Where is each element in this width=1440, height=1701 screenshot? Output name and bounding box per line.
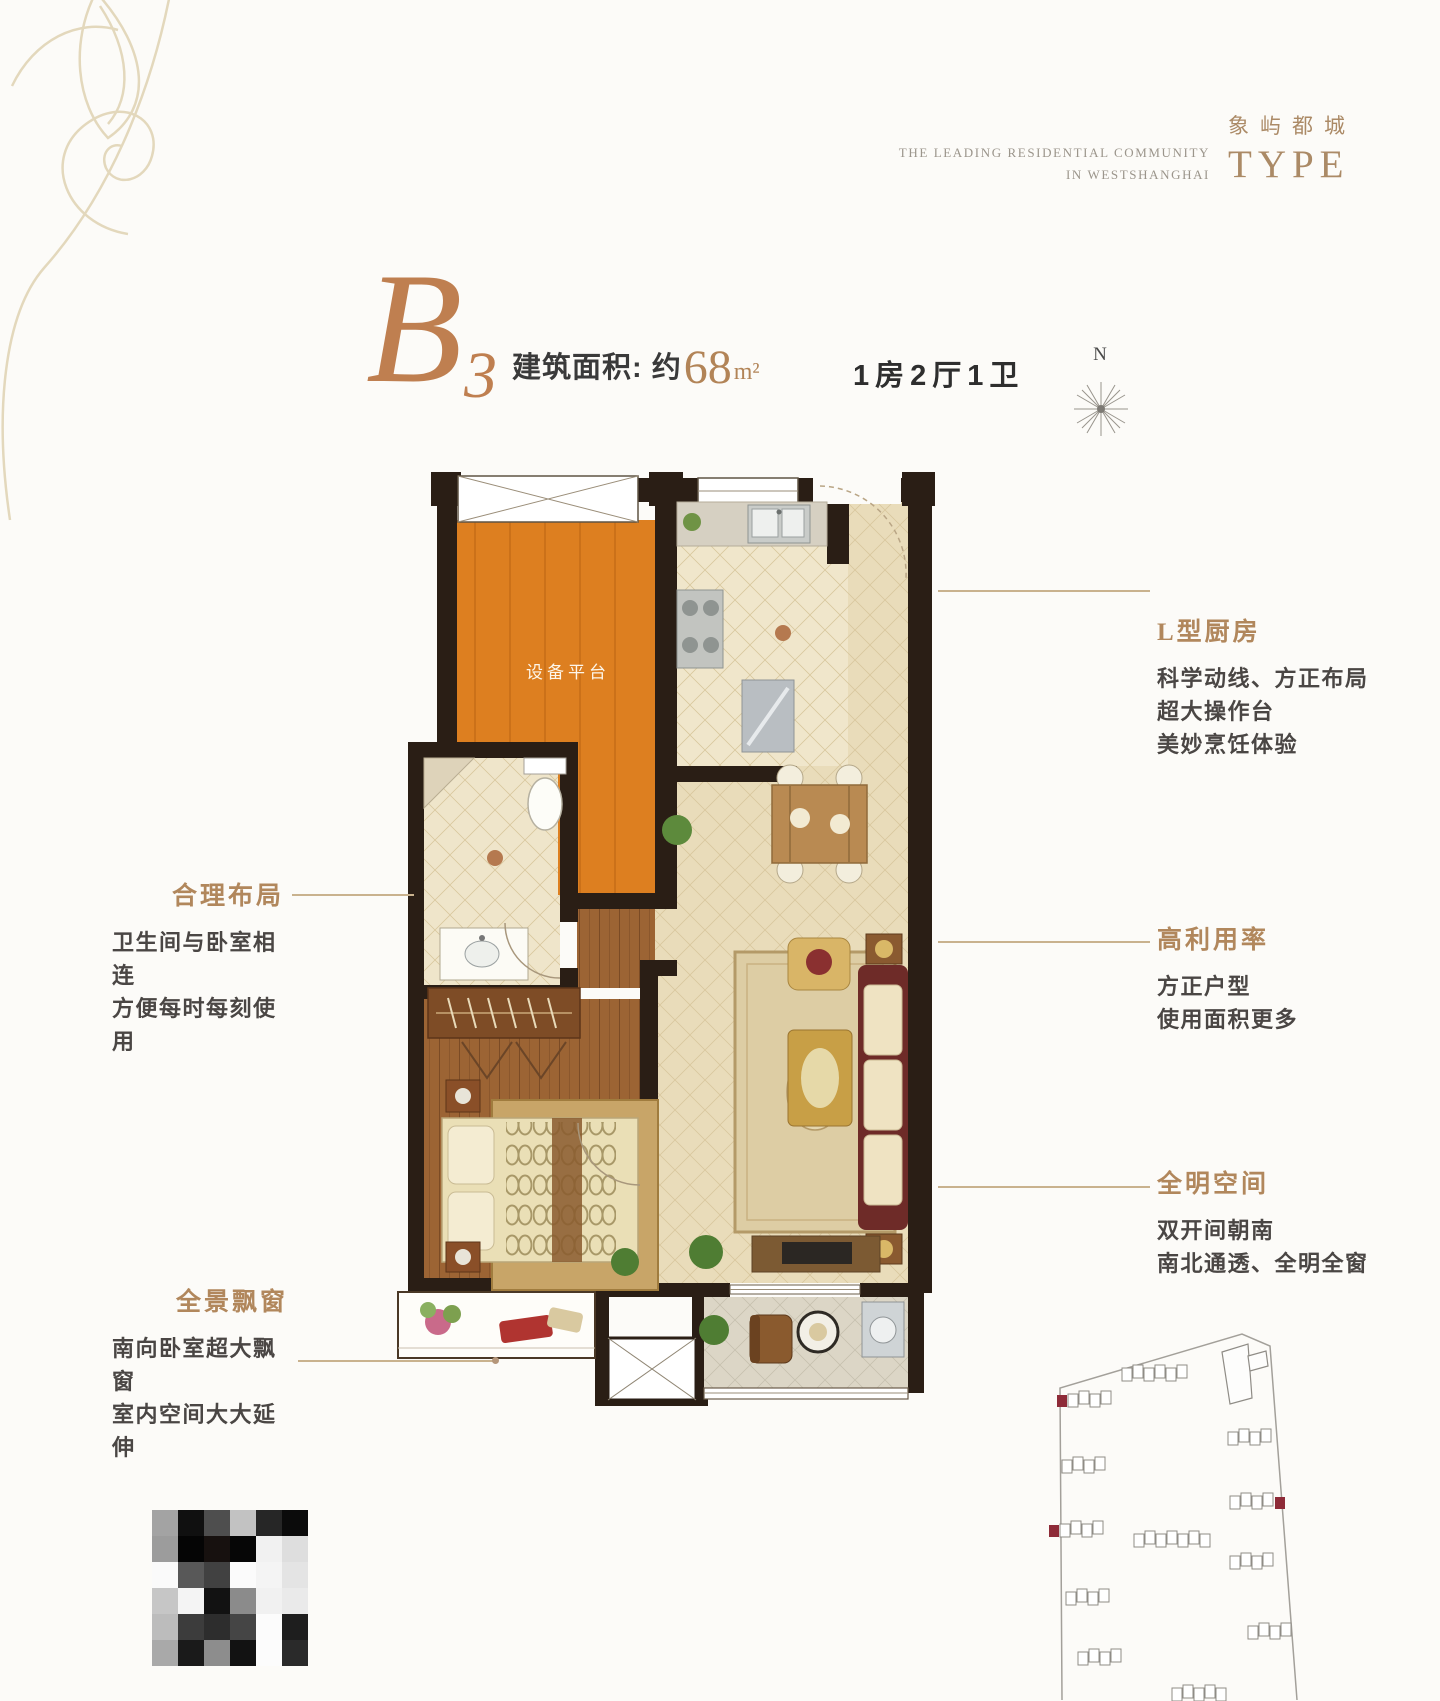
annotation-line: 卫生间与卧室相连: [112, 926, 284, 992]
qr-pixel: [256, 1640, 282, 1666]
qr-pixel: [178, 1536, 204, 1562]
qr-pixel-block: [152, 1510, 308, 1666]
site-highlight-unit: [1057, 1395, 1067, 1407]
annotation-line: 美妙烹饪体验: [1157, 728, 1397, 761]
site-highlight-unit: [1049, 1525, 1059, 1537]
annotation-line: 方正户型: [1157, 970, 1397, 1003]
site-hook-building: [1222, 1344, 1268, 1404]
bath-floor-rosette: [487, 850, 503, 866]
balcony-slider-window: [730, 1285, 860, 1294]
site-building-cluster: [1248, 1623, 1291, 1639]
equipment-platform-window: [458, 476, 638, 522]
logo-type: TYPE: [1228, 142, 1418, 187]
bay-window: [398, 1292, 595, 1358]
dining-plant: [662, 815, 692, 845]
ornament-stem: [3, 0, 170, 520]
site-building-cluster: [1230, 1553, 1273, 1569]
annotation-line: 方便每时每刻使用: [112, 992, 284, 1058]
qr-pixel: [204, 1562, 230, 1588]
toilet-tank: [524, 758, 566, 774]
area-info: 建筑面积: 约 68 m²: [512, 344, 760, 390]
unit-letter: B: [366, 250, 463, 408]
connector-utilization: [938, 941, 1150, 943]
living-plant: [689, 1235, 723, 1269]
annotation-line: 南北通透、全明全窗: [1157, 1247, 1397, 1280]
balcony-table: [798, 1312, 838, 1352]
qr-pixel: [152, 1640, 178, 1666]
kitchen-floor-rosette: [775, 625, 791, 641]
qr-pixel: [204, 1640, 230, 1666]
annotation-l-kitchen: L型厨房 科学动线、方正布局 超大操作台 美妙烹饪体验: [1157, 612, 1397, 761]
compass-rose-icon: [1072, 380, 1130, 438]
qr-pixel: [230, 1562, 256, 1588]
qr-pixel: [230, 1588, 256, 1614]
balcony-chair: [750, 1315, 792, 1363]
area-unit: m²: [734, 359, 760, 390]
basin: [465, 941, 499, 967]
qr-pixel: [256, 1536, 282, 1562]
qr-pixel: [152, 1510, 178, 1536]
floorplan-brochure-page: { "brand": { "tagline_line1": "THE LEADI…: [0, 0, 1440, 1701]
connector-bay-window: [298, 1360, 494, 1362]
site-highlight-unit: [1275, 1497, 1285, 1509]
connector-bright-space: [938, 1186, 1150, 1188]
qr-pixel: [178, 1614, 204, 1640]
annotation-rational-layout: 合理布局 卫生间与卧室相连 方便每时每刻使用: [112, 876, 284, 1058]
site-building-cluster: [1230, 1493, 1285, 1509]
area-label: 建筑面积: 约: [512, 344, 682, 390]
annotation-heading: 全明空间: [1157, 1164, 1397, 1200]
qr-pixel: [282, 1640, 308, 1666]
coffee-table: [788, 1030, 852, 1126]
bedroom-plant: [611, 1248, 639, 1276]
balcony-plant: [699, 1315, 729, 1345]
washer: [862, 1302, 904, 1357]
tagline-line2: IN WESTSHANGHAI: [880, 164, 1210, 186]
site-building-cluster: [1066, 1589, 1109, 1605]
annotation-bay-window: 全景飘窗 南向卧室超大飘窗 室内空间大大延伸: [112, 1282, 288, 1464]
annotation-line: 南向卧室超大飘窗: [112, 1332, 288, 1398]
connector-kitchen: [938, 590, 1150, 592]
qr-pixel: [282, 1588, 308, 1614]
qr-pixel: [230, 1536, 256, 1562]
room-layout-text: 1房2厅1卫: [853, 352, 1024, 394]
sofa: [858, 965, 908, 1230]
toilet-bowl: [528, 778, 562, 830]
unit-number: 3: [464, 338, 497, 414]
qr-pixel: [178, 1640, 204, 1666]
qr-pixel: [256, 1588, 282, 1614]
qr-pixel: [256, 1510, 282, 1536]
connector-rational-layout: [292, 894, 414, 896]
kitchen-sink: [748, 505, 810, 543]
qr-pixel: [230, 1510, 256, 1536]
brand-logo: 象屿都城 TYPE: [1228, 110, 1418, 187]
site-building-cluster: [1228, 1429, 1271, 1445]
qr-pixel: [178, 1588, 204, 1614]
site-boundary: [1060, 1334, 1297, 1700]
annotation-line: 使用面积更多: [1157, 1003, 1397, 1036]
annotation-heading: L型厨房: [1157, 612, 1397, 648]
site-building-cluster: [1078, 1649, 1121, 1665]
tagline-line1: THE LEADING RESIDENTIAL COMMUNITY: [880, 142, 1210, 164]
qr-pixel: [230, 1614, 256, 1640]
qr-pixel: [204, 1614, 230, 1640]
logo-chinese: 象屿都城: [1228, 110, 1418, 140]
qr-pixel: [230, 1640, 256, 1666]
site-plan: [950, 1322, 1410, 1701]
annotation-line: 室内空间大大延伸: [112, 1398, 288, 1464]
brand-tagline: THE LEADING RESIDENTIAL COMMUNITY IN WES…: [880, 142, 1210, 186]
kitchen-window: [698, 478, 798, 504]
qr-pixel: [178, 1562, 204, 1588]
bed: [442, 1118, 638, 1262]
annotation-heading: 高利用率: [1157, 920, 1397, 956]
elevator-shaft: [608, 1338, 696, 1400]
qr-pixel: [282, 1614, 308, 1640]
site-building-cluster: [1172, 1685, 1226, 1701]
balcony-railing: [704, 1388, 908, 1399]
site-building-cluster: [1057, 1391, 1111, 1407]
qr-pixel: [282, 1510, 308, 1536]
tv-cabinet: [752, 1236, 880, 1272]
qr-pixel: [204, 1536, 230, 1562]
qr-pixel: [204, 1510, 230, 1536]
qr-pixel: [256, 1562, 282, 1588]
fridge: [742, 680, 794, 752]
stove: [677, 590, 723, 668]
annotation-bright-space: 全明空间 双开间朝南 南北通透、全明全窗: [1157, 1164, 1397, 1280]
pillow: [448, 1126, 494, 1184]
annotation-heading: 合理布局: [112, 876, 284, 912]
connector-bay-window-dot: [492, 1357, 499, 1364]
qr-pixel: [282, 1562, 308, 1588]
site-building-cluster: [1049, 1521, 1103, 1537]
annotation-high-utilization: 高利用率 方正户型 使用面积更多: [1157, 920, 1397, 1036]
qr-pixel: [152, 1562, 178, 1588]
compass-north-label: N: [1078, 344, 1122, 366]
herb-plant: [683, 513, 701, 531]
annotation-line: 双开间朝南: [1157, 1214, 1397, 1247]
qr-pixel: [152, 1614, 178, 1640]
qr-pixel: [178, 1510, 204, 1536]
floor-plan: 设备平台: [395, 470, 935, 1435]
area-value: 68: [684, 346, 732, 390]
qr-pixel: [256, 1614, 282, 1640]
annotation-line: 科学动线、方正布局: [1157, 662, 1397, 695]
pillow: [448, 1192, 494, 1250]
site-building-cluster: [1134, 1531, 1210, 1547]
equipment-platform-label: 设备平台: [526, 663, 610, 682]
qr-pixel: [282, 1536, 308, 1562]
armchair: [788, 938, 850, 990]
qr-pixel: [204, 1588, 230, 1614]
qr-pixel: [152, 1536, 178, 1562]
annotation-heading: 全景飘窗: [112, 1282, 288, 1318]
site-building-clusters: [1049, 1365, 1291, 1701]
wardrobe: [428, 988, 580, 1038]
qr-pixel: [152, 1588, 178, 1614]
annotation-line: 超大操作台: [1157, 695, 1397, 728]
site-building-cluster: [1062, 1457, 1105, 1473]
